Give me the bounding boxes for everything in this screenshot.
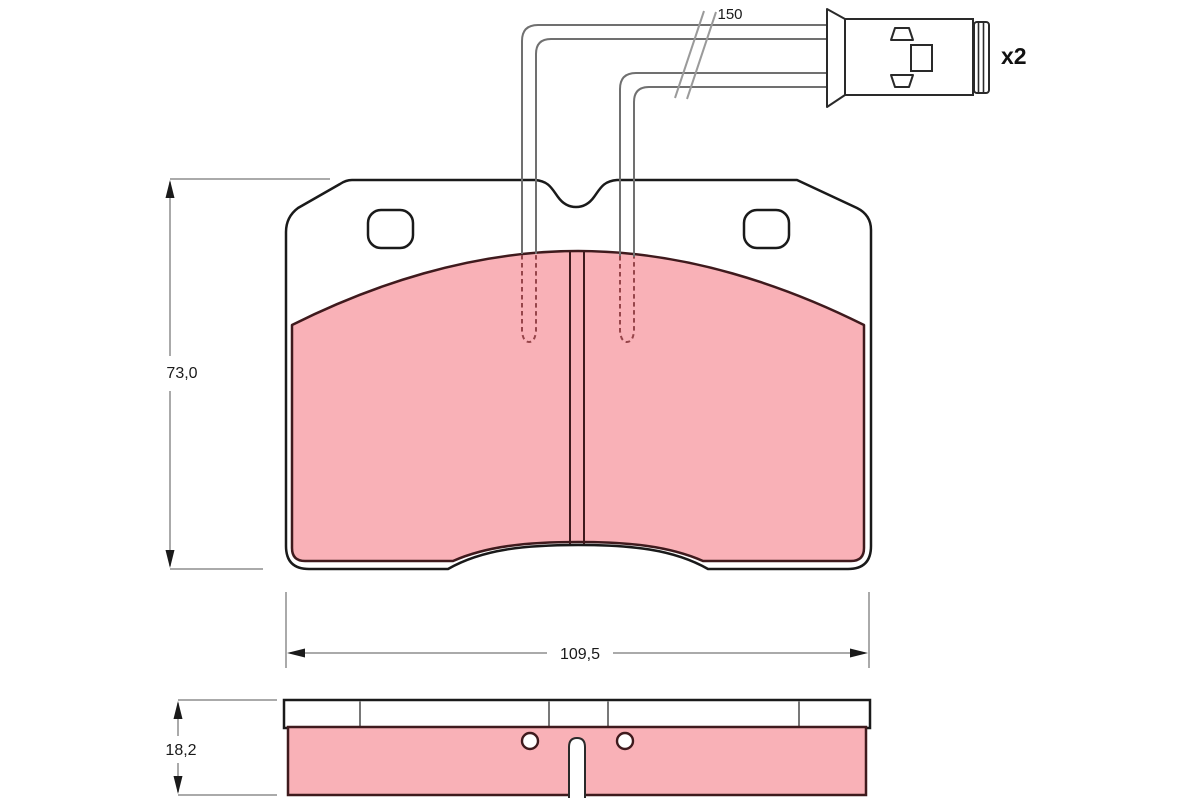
arrowhead-up	[166, 180, 175, 198]
main-view	[286, 180, 871, 569]
width-dimension: 109,5	[286, 592, 869, 668]
arrowhead-left	[287, 649, 305, 658]
friction-material	[292, 251, 864, 561]
connector-pin-middle	[911, 45, 932, 71]
mounting-hole-left	[368, 210, 413, 248]
arrowhead-right	[850, 649, 868, 658]
wear-sensor-connector: x2	[827, 9, 1027, 107]
height-dimension-label: 73,0	[166, 365, 197, 382]
sensor-hole-right	[617, 733, 633, 749]
arrowhead-up	[174, 701, 183, 719]
connector-pin-bottom	[891, 75, 913, 87]
thickness-dimension: 18,2	[165, 700, 277, 795]
quantity-label: x2	[1001, 43, 1027, 69]
side-view	[284, 700, 870, 798]
sensor-hole-left	[522, 733, 538, 749]
arrowhead-down	[174, 776, 183, 794]
wire-length-label: 150	[717, 6, 742, 23]
side-backplate	[284, 700, 870, 728]
mounting-hole-right	[744, 210, 789, 248]
arrowhead-down	[166, 550, 175, 568]
width-dimension-label: 109,5	[560, 646, 600, 663]
connector-pin-top	[891, 28, 913, 40]
side-center-slot	[569, 738, 585, 798]
brake-pad-technical-drawing: 73,0 150	[0, 0, 1200, 800]
connector-cap	[974, 22, 989, 93]
thickness-dimension-label: 18,2	[165, 742, 196, 759]
connector-flange	[827, 9, 845, 107]
